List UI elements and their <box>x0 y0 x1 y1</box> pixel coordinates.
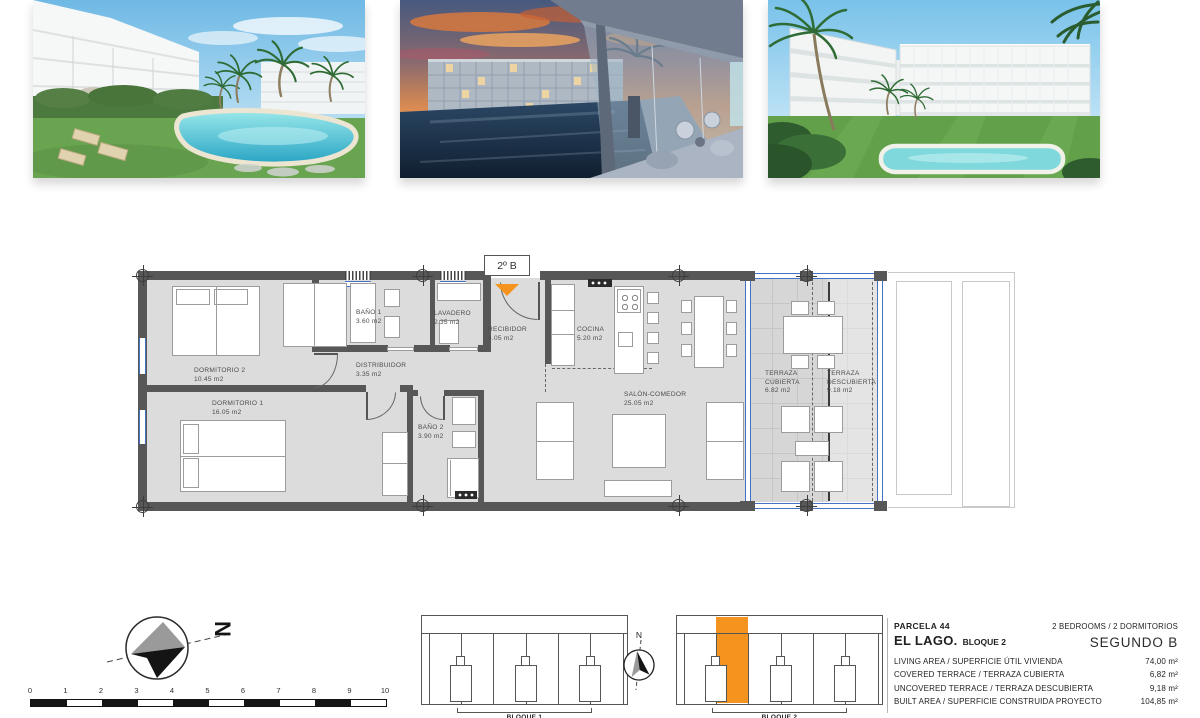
scale-segment <box>173 700 209 706</box>
door-leaf <box>443 396 445 420</box>
scale-tick: 6 <box>241 686 245 695</box>
scale-tick: 1 <box>63 686 67 695</box>
crosshair-mark <box>672 269 685 282</box>
block-2-label: BLOQUE 2 <box>712 714 847 718</box>
room-label-distribuidor: DISTRIBUIDOR 3.35 m2 <box>356 362 416 379</box>
block-2-bracket <box>712 708 847 713</box>
block-1-bracket <box>457 708 592 713</box>
stove-burners <box>617 289 641 313</box>
floor-unit-label: SEGUNDO B <box>1090 635 1178 650</box>
site-block-2 <box>676 615 883 705</box>
chair <box>817 301 835 315</box>
block-1-label: BLOQUE 1 <box>457 714 592 718</box>
site-north-compass: N <box>612 626 668 692</box>
room-label-salon-comedor: SALÓN-COMEDOR 25.05 m2 <box>624 391 704 408</box>
terrace-glass <box>813 503 874 509</box>
crosshair-mark <box>800 499 813 512</box>
unit-info-panel: PARCELA 44 2 BEDROOMS / 2 DORMITORIOS EL… <box>894 621 1178 709</box>
chair <box>791 301 809 315</box>
terrace-boundary-dashed <box>812 282 813 501</box>
room-name: LAVADERO <box>434 310 484 319</box>
room-name: TERRAZA CUBIERTA <box>765 370 809 387</box>
wall <box>414 345 450 352</box>
area-row: COVERED TERRACE / TERRAZA CUBIERTA 6,82 … <box>894 668 1178 681</box>
sliding-door <box>387 347 414 351</box>
unit-divider <box>878 633 879 704</box>
kitchen-sink <box>618 332 633 347</box>
room-label-cocina: COCINA 5.20 m2 <box>577 326 617 343</box>
crosshair-mark <box>136 269 149 282</box>
north-compass <box>105 606 235 690</box>
area-row-label: LIVING AREA / SUPERFICIE ÚTIL VIVIENDA <box>894 655 1063 668</box>
furniture-line <box>450 460 451 496</box>
fixture-toilet <box>384 289 400 307</box>
block-band <box>677 616 882 634</box>
terrace-table <box>783 316 843 354</box>
scale-bar-segments <box>30 699 387 707</box>
scale-bar: 0 1 2 3 4 5 6 7 8 9 10 <box>30 686 386 712</box>
scale-tick: 3 <box>134 686 138 695</box>
scale-segment <box>31 700 67 706</box>
stair-core <box>834 665 856 702</box>
unit-divider <box>813 633 814 704</box>
stair-core <box>579 665 601 702</box>
unit-divider <box>748 633 749 704</box>
site-block-1 <box>421 615 628 705</box>
scale-segment <box>351 700 387 706</box>
scale-segment <box>280 700 316 706</box>
north-label: N <box>209 621 235 637</box>
room-label-banyo-1: BAÑO 1 3.60 m2 <box>356 309 396 326</box>
area-row: LIVING AREA / SUPERFICIE ÚTIL VIVIENDA 7… <box>894 655 1178 668</box>
crosshair-mark <box>136 500 149 513</box>
room-area: 3.90 m2 <box>418 433 458 442</box>
scale-tick: 8 <box>312 686 316 695</box>
furniture-pillow <box>183 424 199 454</box>
salon-glass-wall <box>745 280 751 502</box>
lounge-seat <box>814 406 843 433</box>
kitchen-open-boundary <box>545 364 546 392</box>
scale-segment <box>209 700 245 706</box>
neighbour-outline <box>1014 272 1015 508</box>
scale-segment <box>67 700 103 706</box>
stool <box>647 332 659 344</box>
room-area: 3.35 m2 <box>356 371 416 380</box>
stool <box>647 292 659 304</box>
block-band <box>422 616 627 634</box>
wall <box>138 385 366 392</box>
scale-segment <box>102 700 138 706</box>
neighbour-outline <box>962 281 1010 507</box>
area-row-value: 9,18 m² <box>1150 682 1178 695</box>
room-name: BAÑO 1 <box>356 309 396 318</box>
post <box>874 271 887 281</box>
wall <box>138 502 755 511</box>
entrance-arrow-icon <box>495 284 519 296</box>
wall <box>478 345 491 352</box>
chair <box>681 322 692 335</box>
scale-tick: 2 <box>99 686 103 695</box>
unit-divider <box>429 633 430 704</box>
room-name: DORMITORIO 2 <box>194 367 264 376</box>
furniture-wardrobe <box>382 432 408 496</box>
area-row-value: 104,85 m² <box>1141 695 1178 708</box>
room-name: BAÑO 2 <box>418 424 458 433</box>
lounge-seat <box>781 406 810 433</box>
terrace-balustrade-glass <box>877 281 883 501</box>
room-name: COCINA <box>577 326 617 335</box>
unit-divider <box>558 633 559 704</box>
neighbour-outline <box>896 281 952 495</box>
room-area: 3.60 m2 <box>356 318 396 327</box>
room-area: 25.05 m2 <box>624 400 704 409</box>
sliding-door <box>449 347 478 351</box>
scale-tick: 7 <box>276 686 280 695</box>
entrance-unit-tag: 2º B <box>484 255 530 276</box>
scale-segment <box>138 700 174 706</box>
furniture-line <box>707 441 743 442</box>
furniture-line <box>314 284 315 346</box>
chair <box>681 344 692 357</box>
room-area: 10.45 m2 <box>194 376 264 385</box>
fixture-sink <box>452 397 476 425</box>
room-name: DISTRIBUIDOR <box>356 362 416 371</box>
stair-core <box>450 665 472 702</box>
radiator <box>455 491 477 499</box>
furniture-line <box>181 456 285 457</box>
room-name: RECIBIDOR <box>488 326 532 335</box>
room-area: 16.05 m2 <box>212 409 282 418</box>
tv-bench <box>604 480 672 497</box>
window <box>139 338 146 374</box>
chair <box>726 300 737 313</box>
stair-core <box>515 665 537 702</box>
area-row-value: 6,82 m² <box>1150 668 1178 681</box>
coffee-table <box>612 414 666 468</box>
lounge-seat <box>781 461 810 492</box>
furniture-line <box>552 334 574 335</box>
side-table <box>795 441 829 456</box>
entrance-unit-label: 2º B <box>497 260 517 272</box>
crosshair-mark <box>800 269 813 282</box>
crosshair-mark <box>672 499 685 512</box>
hood-vent <box>588 279 612 287</box>
neighbour-outline <box>888 507 1015 508</box>
area-row-label: UNCOVERED TERRACE / TERRAZA DESCUBIERTA <box>894 682 1093 695</box>
room-label-dormitorio-2: DORMITORIO 2 10.45 m2 <box>194 367 264 384</box>
chair <box>681 300 692 313</box>
crosshair-mark <box>416 499 429 512</box>
furniture-pillow <box>214 289 248 305</box>
chair <box>817 355 835 369</box>
door-leaf <box>538 282 540 320</box>
scale-tick: 4 <box>170 686 174 695</box>
vent-hatch <box>440 271 466 280</box>
area-table: LIVING AREA / SUPERFICIE ÚTIL VIVIENDA 7… <box>894 655 1178 709</box>
fixture-counter <box>437 283 481 301</box>
scale-segment <box>244 700 280 706</box>
chair <box>791 355 809 369</box>
scale-tick: 9 <box>347 686 351 695</box>
room-name: DORMITORIO 1 <box>212 400 282 409</box>
stool <box>647 312 659 324</box>
room-label-terraza-cubierta: TERRAZA CUBIERTA 6.82 m2 <box>765 370 809 396</box>
parcela-label: PARCELA 44 <box>894 621 950 631</box>
post <box>874 501 887 511</box>
site-north-label: N <box>636 630 642 640</box>
scale-tick: 10 <box>381 686 389 695</box>
window <box>139 410 146 444</box>
info-divider <box>887 618 888 713</box>
wall <box>407 390 418 396</box>
room-label-recibidor: RECIBIDOR 4.05 m2 <box>488 326 532 343</box>
room-area: 5.20 m2 <box>577 335 617 344</box>
unit-divider <box>684 633 685 704</box>
vent-hatch <box>345 271 371 280</box>
crosshair-mark <box>416 269 429 282</box>
scale-segment <box>315 700 351 706</box>
lounge-seat <box>814 461 843 492</box>
room-label-dormitorio-1: DORMITORIO 1 16.05 m2 <box>212 400 282 417</box>
bedrooms-label: 2 BEDROOMS / 2 DORMITORIOS <box>1052 622 1178 631</box>
room-area: 9.18 m2 <box>827 387 877 396</box>
room-label-lavadero: LAVADERO 2.35 m2 <box>434 310 484 327</box>
furniture-wardrobe <box>283 283 347 347</box>
area-row: UNCOVERED TERRACE / TERRAZA DESCUBIERTA … <box>894 682 1178 695</box>
room-name: TERRAZA DESCUBIERTA <box>827 370 877 387</box>
neighbour-outline <box>888 272 1015 273</box>
room-area: 2.35 m2 <box>434 319 484 328</box>
kitchen-counter <box>551 284 575 366</box>
room-name: SALÓN-COMEDOR <box>624 391 704 400</box>
scale-tick: 5 <box>205 686 209 695</box>
stair-core <box>705 665 727 702</box>
dining-table <box>694 296 724 368</box>
project-block: BLOQUE 2 <box>963 637 1006 647</box>
room-label-terraza-descubierta: TERRAZA DESCUBIERTA 9.18 m2 <box>827 370 877 396</box>
terrace-glass <box>813 273 874 279</box>
room-area: 4.05 m2 <box>488 335 532 344</box>
project-name: EL LAGO. <box>894 633 958 648</box>
brochure-page: DORMITORIO 2 10.45 m2 DORMITORIO 1 16.05… <box>0 0 1200 718</box>
scale-tick: 0 <box>28 686 32 695</box>
area-row-label: COVERED TERRACE / TERRAZA CUBIERTA <box>894 668 1064 681</box>
room-area: 6.82 m2 <box>765 387 809 396</box>
post <box>740 501 755 511</box>
furniture-pillow <box>176 289 210 305</box>
room-label-banyo-2: BAÑO 2 3.90 m2 <box>418 424 458 441</box>
furniture-line <box>537 441 573 442</box>
chair <box>726 322 737 335</box>
chair <box>726 344 737 357</box>
furniture-line <box>383 463 407 464</box>
area-row: BUILT AREA / SUPERFICIE CONSTRUIDA PROYE… <box>894 695 1178 708</box>
post <box>740 271 755 281</box>
terrace-glass <box>755 273 800 279</box>
stool <box>647 352 659 364</box>
area-row-label: BUILT AREA / SUPERFICIE CONSTRUIDA PROYE… <box>894 695 1102 708</box>
area-row-value: 74,00 m² <box>1145 655 1178 668</box>
furniture-pillow <box>183 458 199 488</box>
furniture-line <box>216 287 217 355</box>
wall <box>540 271 755 280</box>
furniture-line <box>552 310 574 311</box>
stair-core <box>770 665 792 702</box>
unit-divider <box>493 633 494 704</box>
terrace-glass <box>755 503 800 509</box>
